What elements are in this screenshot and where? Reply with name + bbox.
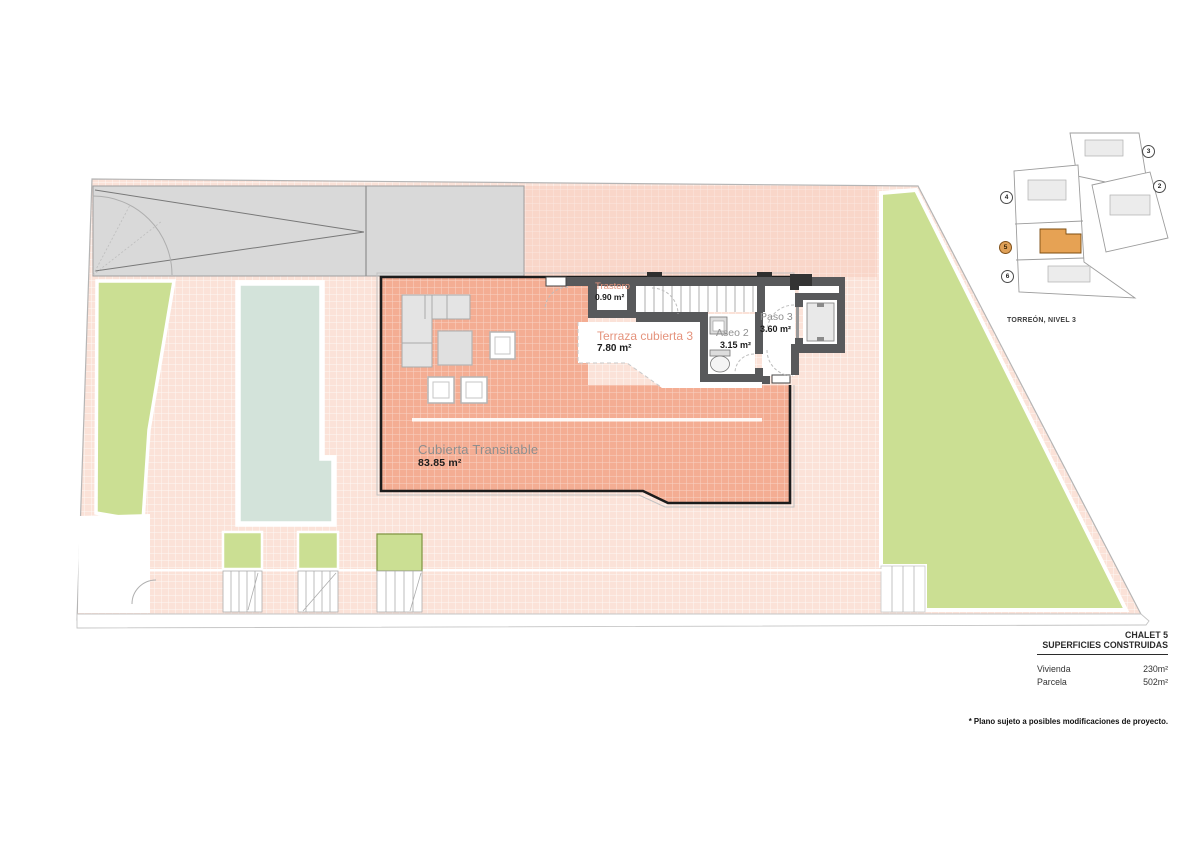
door-leaf-top bbox=[546, 277, 566, 286]
legend-row-value: 502m² bbox=[1143, 677, 1168, 687]
legend: CHALET 5 SUPERFICIES CONSTRUIDAS Viviend… bbox=[1037, 630, 1168, 687]
garden-square-2 bbox=[298, 532, 338, 569]
elevator bbox=[803, 300, 837, 344]
garden-square-1 bbox=[223, 532, 262, 569]
legend-title: CHALET 5 bbox=[1037, 630, 1168, 640]
table-icon bbox=[438, 331, 472, 365]
side-table-icon bbox=[490, 332, 515, 359]
legend-row-label: Vivienda bbox=[1037, 664, 1071, 674]
sink-icon bbox=[710, 317, 727, 334]
floor-plan-page: Trastero 0.90 m² Terraza cubierta 3 7.80… bbox=[0, 0, 1200, 848]
legend-row-label: Parcela bbox=[1037, 677, 1067, 687]
legend-row: Vivienda 230m² bbox=[1037, 664, 1168, 674]
legend-row: Parcela 502m² bbox=[1037, 677, 1168, 687]
pool bbox=[238, 283, 334, 524]
door-leaf-bottom bbox=[772, 375, 790, 383]
trastero-room bbox=[597, 286, 627, 310]
garden-square-3 bbox=[377, 534, 422, 571]
keyplan-unit-5-marker: 5 bbox=[999, 241, 1012, 254]
keyplan-caption: TORREÓN, NIVEL 3 bbox=[1007, 317, 1076, 324]
staircase bbox=[636, 286, 757, 312]
keyplan-unit-4-marker: 4 bbox=[1000, 191, 1013, 204]
legend-subtitle: SUPERFICIES CONSTRUIDAS bbox=[1037, 640, 1168, 655]
driveway bbox=[93, 186, 524, 276]
keyplan-unit-3-marker: 3 bbox=[1142, 145, 1155, 158]
keyplan-unit-2-marker: 2 bbox=[1153, 180, 1166, 193]
legend-row-value: 230m² bbox=[1143, 664, 1168, 674]
garden-stairs bbox=[881, 566, 925, 612]
footnote: * Plano sujeto a posibles modificaciones… bbox=[969, 717, 1168, 726]
bottom-stairs bbox=[223, 571, 422, 612]
keyplan-unit-6-marker: 6 bbox=[1001, 270, 1014, 283]
toilet-icon bbox=[710, 350, 730, 372]
key-plan bbox=[1014, 133, 1168, 298]
